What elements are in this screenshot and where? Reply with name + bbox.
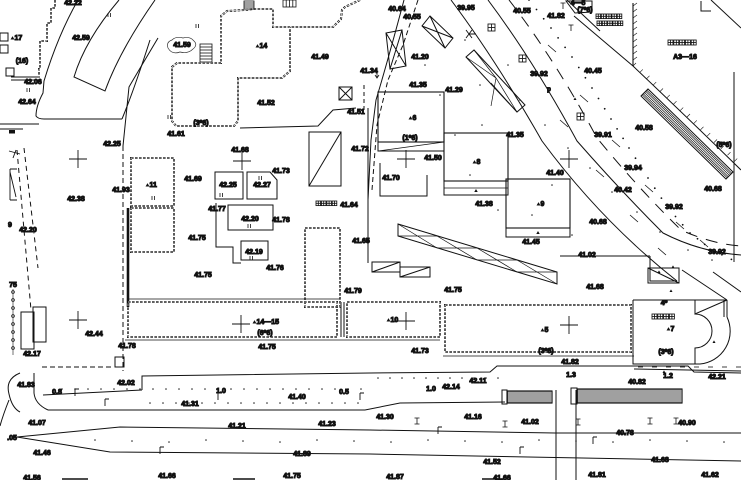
svg-text:(3*6): (3*6) [658,349,673,356]
svg-text:41.82: 41.82 [547,13,565,20]
svg-text:39.94: 39.94 [624,165,642,172]
svg-text:41.40: 41.40 [546,170,564,177]
svg-text:41.69: 41.69 [184,176,202,183]
svg-text:41.40: 41.40 [288,394,306,401]
svg-text:41.23: 41.23 [318,421,336,428]
svg-text:42.64: 42.64 [18,99,36,106]
svg-text:41.07: 41.07 [28,420,46,427]
svg-text:40.90: 40.90 [678,420,696,427]
svg-text:1.3: 1.3 [566,372,576,379]
svg-text:39.92: 39.92 [708,249,726,256]
svg-text:42.21: 42.21 [708,374,726,381]
svg-text:14—15: 14—15 [257,319,280,326]
svg-text:42.02: 42.02 [117,380,135,387]
svg-text:41.83: 41.83 [17,382,35,389]
svg-text:(6*6): (6*6) [257,330,272,337]
svg-text:41.35: 41.35 [409,82,427,89]
svg-text:41.02: 41.02 [521,419,539,426]
svg-text:41.68: 41.68 [231,147,249,154]
svg-text:4*: 4* [661,300,668,307]
svg-text:41.30: 41.30 [376,414,394,421]
svg-text:(3*6): (3*6) [538,348,553,355]
svg-text:5: 5 [545,327,549,334]
svg-text:39.95: 39.95 [457,5,475,12]
svg-text:41.78: 41.78 [272,217,290,224]
svg-text:41.89: 41.89 [293,451,311,458]
svg-text:p: p [547,87,551,93]
svg-text:42.27: 42.27 [253,182,271,189]
svg-text:41.35: 41.35 [506,132,524,139]
svg-text:41.76: 41.76 [266,265,284,272]
svg-text:40.55: 40.55 [513,8,531,15]
svg-text:42.11: 42.11 [469,378,486,385]
svg-text:(16): (16) [16,58,28,65]
svg-text:6: 6 [413,115,417,122]
svg-text:9: 9 [541,201,545,208]
svg-text:1.0: 1.0 [426,386,436,393]
svg-text:41.52: 41.52 [483,459,501,466]
svg-text:42.25: 42.25 [103,141,121,148]
svg-text:40.42: 40.42 [614,187,632,194]
svg-text:41.52: 41.52 [257,100,275,107]
svg-text:7: 7 [671,326,675,333]
svg-text:41.29: 41.29 [445,87,463,94]
svg-text:11: 11 [150,182,158,189]
svg-text:41.75: 41.75 [188,235,206,242]
svg-text:41.79: 41.79 [344,288,362,295]
svg-text:42.06: 42.06 [24,79,42,86]
svg-text:9: 9 [8,222,12,229]
svg-text:1.0: 1.0 [216,388,226,395]
svg-text:40.55: 40.55 [403,14,421,21]
svg-text:41.77: 41.77 [208,206,226,213]
svg-text:42.22: 42.22 [64,0,82,7]
svg-text:41.73: 41.73 [411,348,429,355]
svg-text:40.64: 40.64 [388,6,406,13]
svg-text:75: 75 [9,282,17,289]
svg-text:41.75: 41.75 [258,344,276,351]
svg-text:(7*6): (7*6) [577,7,592,14]
svg-text:41.65: 41.65 [352,238,370,245]
svg-text:40.68: 40.68 [704,186,722,193]
svg-text:40.45: 40.45 [584,68,602,75]
svg-text:14: 14 [260,43,268,50]
svg-text:40.58: 40.58 [635,125,653,132]
svg-text:17: 17 [15,35,23,42]
svg-text:42.20: 42.20 [241,216,259,223]
svg-text:41.34: 41.34 [360,68,378,75]
svg-text:10: 10 [391,317,399,324]
svg-text:41.68: 41.68 [586,284,604,291]
svg-text:41.82: 41.82 [561,359,579,366]
svg-text:1.2: 1.2 [663,373,673,380]
svg-text:41.45: 41.45 [522,239,540,246]
svg-text:0.5: 0.5 [339,389,349,396]
svg-text:.05: .05 [7,435,17,442]
svg-text:41.16: 41.16 [464,414,482,421]
svg-text:41.72: 41.72 [351,146,369,153]
svg-text:39.92: 39.92 [530,71,548,78]
svg-text:41.21: 41.21 [228,423,246,430]
svg-text:41.56: 41.56 [23,475,41,480]
svg-text:0.8: 0.8 [52,389,62,396]
svg-text:42.14: 42.14 [442,384,460,391]
svg-text:42.38: 42.38 [67,196,85,203]
svg-text:41.75: 41.75 [283,473,301,480]
svg-text:40.68: 40.68 [589,219,607,226]
svg-text:42.19: 42.19 [245,249,263,256]
svg-text:41.68: 41.68 [651,457,669,464]
svg-text:41.62: 41.62 [701,472,719,479]
svg-text:42.59: 42.59 [72,35,90,42]
svg-text:A3—16: A3—16 [673,54,697,61]
svg-text:40.82: 40.82 [628,379,646,386]
svg-text:41.31: 41.31 [181,401,199,408]
svg-text:41.38: 41.38 [475,201,493,208]
svg-text:41.51: 41.51 [347,109,365,116]
svg-text:41.87: 41.87 [386,474,404,480]
svg-text:41.66: 41.66 [158,473,176,480]
svg-text:41.50: 41.50 [424,155,442,162]
svg-text:41.49: 41.49 [311,54,329,61]
svg-text:41.02: 41.02 [578,252,596,259]
svg-text:40.78: 40.78 [616,430,634,437]
svg-text:41.75: 41.75 [444,287,462,294]
svg-text:(1*6): (1*6) [402,135,417,142]
svg-text:42.17: 42.17 [23,351,41,358]
svg-text:42.25: 42.25 [219,182,237,189]
svg-text:39.92: 39.92 [665,204,683,211]
svg-text:41.59: 41.59 [173,42,191,49]
svg-text:42.20: 42.20 [19,227,37,234]
svg-text:42.44: 42.44 [85,331,103,338]
svg-text:41.93: 41.93 [112,187,130,194]
svg-text:41.46: 41.46 [33,450,51,457]
svg-text:41.70: 41.70 [382,175,400,182]
svg-text:41.75: 41.75 [194,272,212,279]
svg-text:41.78: 41.78 [118,343,136,350]
svg-text:41.20: 41.20 [411,54,429,61]
svg-text:41.73: 41.73 [272,168,290,175]
svg-text:41.81: 41.81 [588,472,606,479]
svg-text:(5*6): (5*6) [716,142,731,149]
svg-text:41.64: 41.64 [340,202,358,209]
svg-text:4—5: 4—5 [571,0,586,7]
svg-text:39.91: 39.91 [594,132,612,139]
svg-text:41.61: 41.61 [167,131,185,138]
svg-text:8: 8 [477,159,481,166]
svg-text:(3*6): (3*6) [193,120,208,127]
